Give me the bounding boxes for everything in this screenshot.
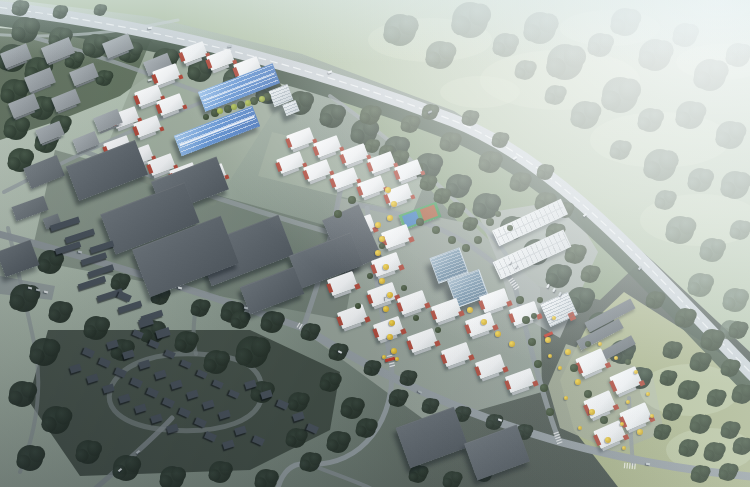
car [328, 70, 332, 73]
aerial-rendering-canvas [0, 0, 750, 487]
car [148, 78, 152, 81]
car [228, 44, 232, 47]
car [418, 390, 422, 394]
car [552, 288, 556, 292]
car [513, 156, 517, 160]
car [558, 292, 562, 296]
car [28, 287, 32, 290]
car [508, 260, 512, 264]
car [583, 213, 587, 217]
car [338, 350, 342, 354]
car [646, 463, 650, 466]
car [428, 110, 432, 114]
car [244, 306, 248, 309]
car [36, 289, 40, 292]
car [385, 298, 387, 302]
car [118, 468, 122, 472]
car [78, 251, 82, 254]
car [498, 418, 502, 421]
car [514, 264, 518, 268]
car [638, 266, 642, 270]
vehicles-layer [0, 0, 750, 487]
car [148, 27, 152, 30]
car [178, 286, 182, 289]
car [546, 284, 550, 288]
car [136, 450, 140, 454]
car [44, 291, 48, 294]
